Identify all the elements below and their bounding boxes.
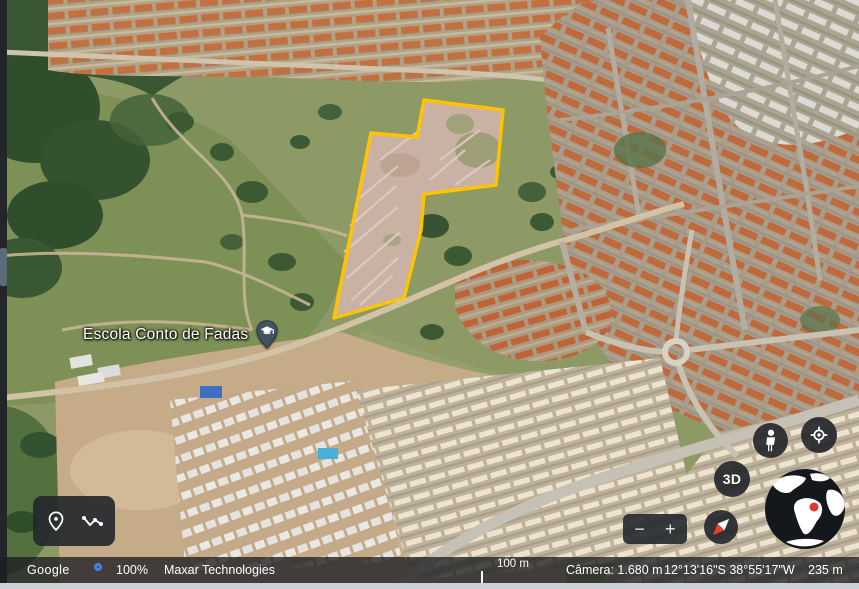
- earth-globe-icon: [764, 468, 846, 550]
- school-pin-icon[interactable]: [256, 320, 278, 349]
- my-location-button[interactable]: [801, 417, 837, 453]
- google-earth-window: Escola Conto de Fadas − +: [0, 0, 859, 589]
- measure-button[interactable]: [79, 508, 105, 534]
- placemark-pin-icon: [45, 509, 67, 533]
- target-icon: [807, 423, 831, 447]
- camera-altitude: Câmera: 1.680 m: [566, 557, 663, 583]
- map-scale: 100 m: [481, 558, 545, 582]
- scrollbar-thumb[interactable]: [0, 248, 7, 286]
- measure-path-icon: [81, 511, 104, 531]
- google-logo: Google: [27, 557, 70, 583]
- window-bottom-edge: [0, 583, 859, 589]
- location-dot: [810, 503, 819, 512]
- zoom-out-button[interactable]: −: [626, 515, 654, 543]
- imagery-credit: Maxar Technologies: [164, 557, 275, 583]
- map-scale-label: 100 m: [481, 558, 545, 571]
- zoom-control: − +: [623, 514, 687, 544]
- add-placemark-button[interactable]: [43, 508, 69, 534]
- satellite-map[interactable]: [0, 0, 859, 589]
- place-label-text: Escola Conto de Fadas: [83, 326, 248, 344]
- status-bar: Google 100% Maxar Technologies 100 m Câm…: [0, 557, 859, 583]
- place-label-escola[interactable]: Escola Conto de Fadas: [83, 320, 278, 349]
- cursor-coordinates: 12°13'16"S 38°55'17"W: [664, 557, 795, 583]
- pegman-button[interactable]: [753, 423, 788, 458]
- loading-ring-icon: [94, 563, 102, 571]
- sidebar-edge: [0, 0, 7, 583]
- pegman-person-icon: [760, 428, 782, 454]
- terrain-elevation: 235 m: [808, 557, 843, 583]
- compass-needle-icon: [706, 512, 736, 542]
- loading-percent: 100%: [116, 557, 148, 583]
- map-tools-toolbar: [33, 496, 115, 546]
- 3d-view-button[interactable]: 3D: [714, 461, 750, 497]
- zoom-in-button[interactable]: +: [656, 515, 684, 543]
- compass-button[interactable]: [704, 510, 738, 544]
- globe-button[interactable]: [764, 468, 846, 550]
